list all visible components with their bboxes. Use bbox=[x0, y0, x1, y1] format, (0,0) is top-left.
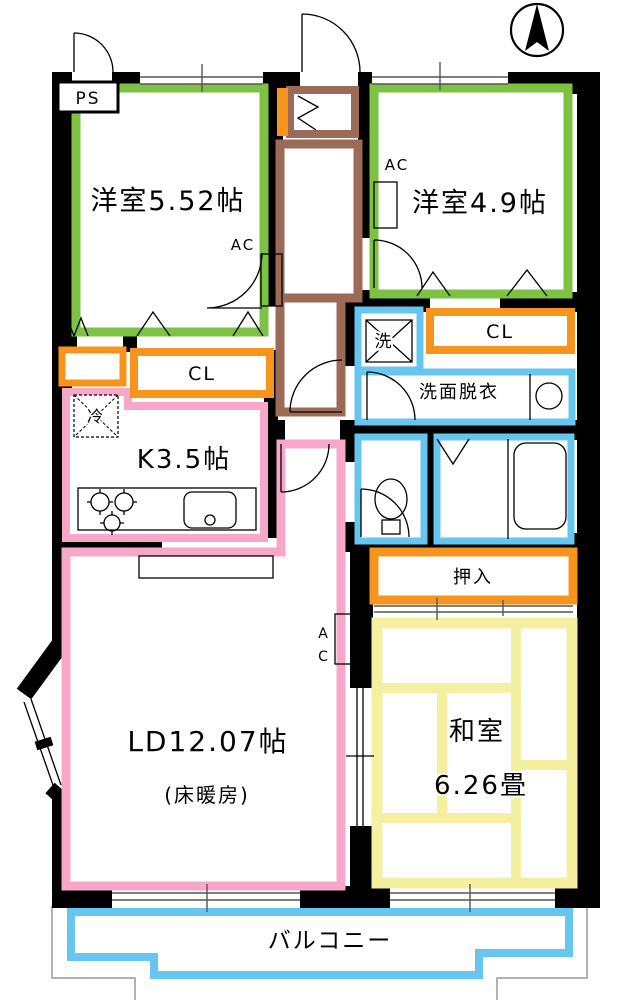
floor-plan: PS 洋室5.52帖 AC 洋室4.9帖 AC CL CL 洗 洗面脱衣 冷 K… bbox=[0, 0, 634, 1000]
entry-corridor-lower bbox=[280, 298, 341, 412]
balcony-label: バルコニー bbox=[268, 928, 393, 954]
bay-wall-upper bbox=[24, 642, 62, 694]
living-note: (床暖房) bbox=[164, 783, 250, 807]
japanese-room-size: 6.26畳 bbox=[434, 771, 528, 801]
ps-door-arc bbox=[74, 33, 113, 72]
living-label: LD12.07帖 bbox=[127, 725, 288, 758]
living-ac-label-c: C bbox=[318, 649, 330, 665]
bedroom1-label: 洋室5.52帖 bbox=[90, 186, 245, 217]
kitchen-label: K3.5帖 bbox=[137, 445, 231, 475]
bedroom2-ac-label: AC bbox=[385, 156, 409, 174]
ps-label: PS bbox=[75, 89, 100, 109]
closet-right-label: CL bbox=[486, 321, 514, 343]
oshiire-label: 押入 bbox=[453, 567, 493, 588]
closet-left-label: CL bbox=[188, 363, 216, 385]
bedroom2-label: 洋室4.9帖 bbox=[412, 188, 548, 219]
fridge-label: 冷 bbox=[87, 407, 105, 426]
closet-left-small bbox=[62, 350, 123, 383]
tatami-mats bbox=[377, 623, 572, 883]
entrance-door-arc bbox=[302, 14, 360, 72]
compass-icon bbox=[511, 4, 563, 56]
japanese-room-label: 和室 bbox=[449, 717, 505, 747]
washer-label: 洗 bbox=[375, 332, 394, 352]
bathroom-room bbox=[437, 437, 571, 541]
entry-accent-strip bbox=[277, 88, 288, 136]
north-arrow-icon bbox=[525, 4, 549, 51]
washroom-label: 洗面脱衣 bbox=[419, 382, 499, 403]
bedroom1-ac-label: AC bbox=[231, 236, 255, 254]
entry-corridor-upper bbox=[280, 144, 358, 298]
living-ac-label-a: A bbox=[318, 626, 330, 642]
